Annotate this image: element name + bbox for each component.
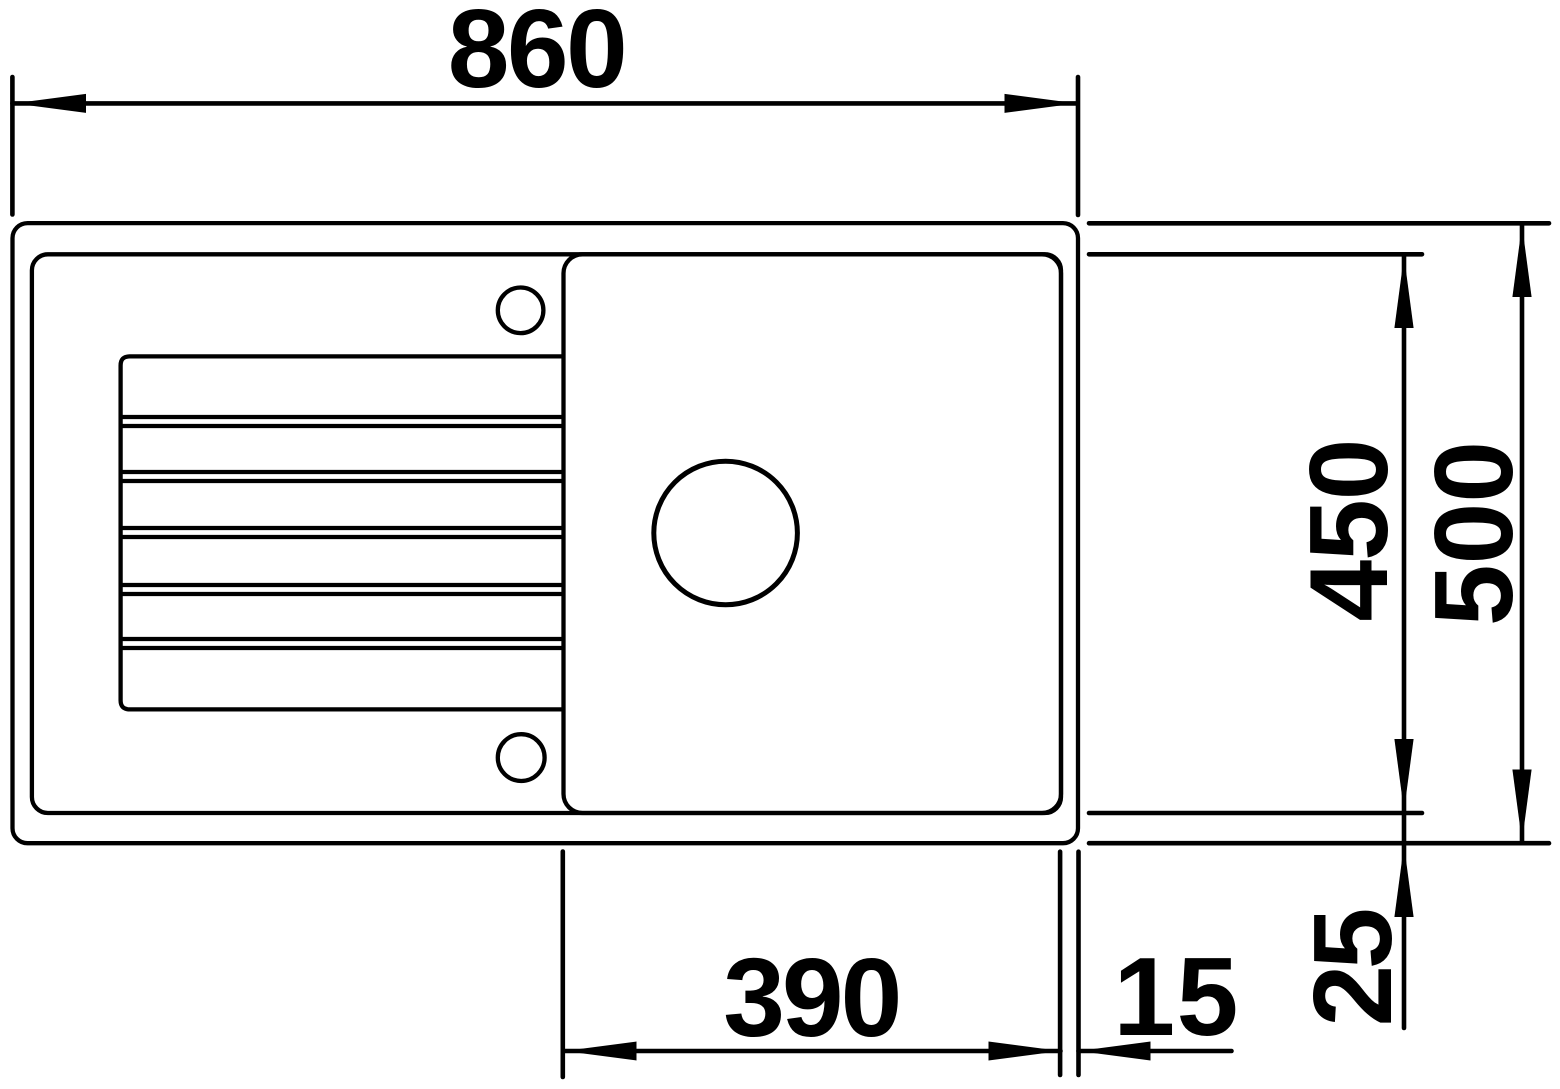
- svg-text:390: 390: [723, 936, 902, 1060]
- svg-text:500: 500: [1412, 441, 1536, 626]
- svg-text:15: 15: [1113, 935, 1238, 1059]
- svg-text:450: 450: [1287, 439, 1411, 622]
- svg-text:860: 860: [448, 0, 628, 111]
- svg-text:25: 25: [1291, 908, 1415, 1027]
